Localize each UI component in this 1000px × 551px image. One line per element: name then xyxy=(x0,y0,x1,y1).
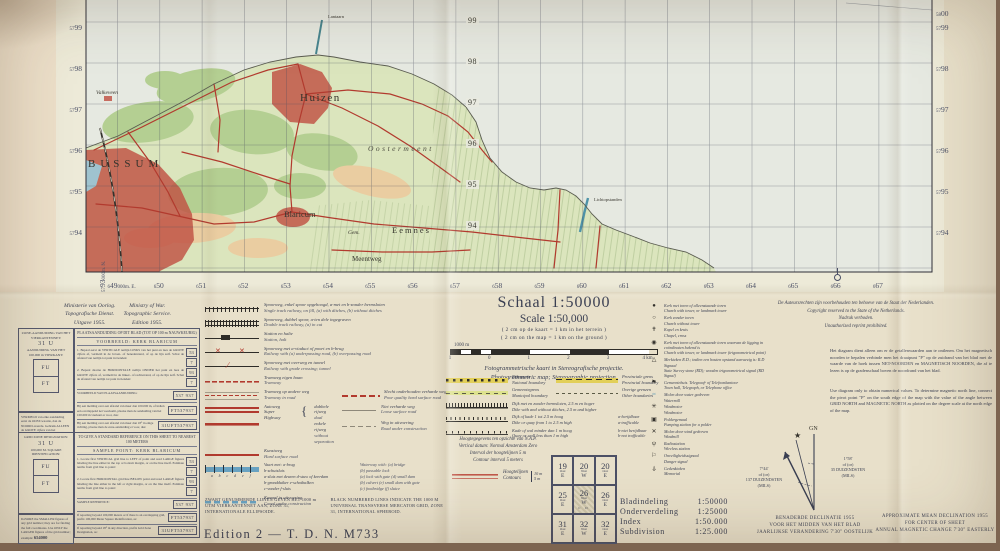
legend-row: KunstwegHard surface road xyxy=(205,448,448,460)
grid-easting-label-digits: 65 xyxy=(791,281,799,290)
symbol-label-en: Church with tower, or landmark tower (tr… xyxy=(664,350,767,355)
publisher-line: Ministerie van Oorlog. xyxy=(64,302,115,310)
sheet-index-cell: 25OostE xyxy=(552,485,573,514)
copyright-line: Unauthorized reprint prohibited. xyxy=(756,323,956,331)
radio-station-icon: ψ xyxy=(649,441,659,448)
grid-easting-label-digits: 60 xyxy=(579,281,587,290)
town-hall-icon: ⚑ xyxy=(649,380,659,387)
grid-northing-label-digits: 99 xyxy=(75,23,83,32)
grid-inner-number: 98 xyxy=(466,57,479,66)
legend-label: Spoorweg, dubbel spoor, a-ten dele ingeg… xyxy=(264,317,448,329)
legend-label-en: Railway with (a) underpassing road, (b) … xyxy=(264,351,448,357)
ref-title: TO GIVE A STANDARD REFERENCE ON THIS SHE… xyxy=(77,435,197,447)
grid-easting-label-digits: 66 xyxy=(833,281,841,290)
tenths-value: 7 xyxy=(186,378,197,387)
symbol-row: ≈Molen door water gedrevenWatermill xyxy=(649,392,767,403)
grid-northing-label-digits: 95 xyxy=(75,187,83,196)
grid-easting-label-digits: 50 xyxy=(156,281,164,290)
square-prefix-row: If reporting beyond 100,000 meters or if… xyxy=(77,511,197,522)
memorial-icon: ⍙ xyxy=(649,466,659,473)
step-text: 2. Bepaal daarna de HORIZONTALE netlijn … xyxy=(77,368,184,387)
publisher-line: Ministry of War. xyxy=(123,302,171,310)
scale-bar-segment xyxy=(609,350,649,354)
sheet-letter: E xyxy=(561,532,564,538)
highway-right-column: Niet verharde wegLoose surface roadWeg i… xyxy=(342,404,448,435)
grid-northing-label: 5795 xyxy=(936,181,949,199)
symbol-label: Kerk zonder torenChurch without tower xyxy=(664,315,767,326)
contour-line-symbol xyxy=(452,472,498,480)
scale-tick: 1 xyxy=(528,356,531,361)
loose-road-symbol xyxy=(342,406,376,416)
grid-inner-number: 95 xyxy=(466,180,479,189)
sample-label: VOORBEELD VAN PLAATSAANDUIDING: xyxy=(77,391,171,400)
grid-easting-label: 652 xyxy=(238,275,248,293)
utm-note-dutch: ZWART GENUMMERDE LIJNEN GEVEN HET 1000 m… xyxy=(205,497,323,515)
grid-easting-label: 655 xyxy=(365,275,375,293)
step-values: 537 xyxy=(186,348,197,367)
grid-easting-label-suffix: 000m. E. xyxy=(118,285,136,290)
symbol-label-en: Church without tower xyxy=(664,321,767,326)
grid-northing-label-digits: 98 xyxy=(941,64,949,73)
symbol-row: ✳WindmotorWindmotor xyxy=(649,404,767,415)
sheet-index-labels: Bladindeling1:50000Onderverdeling1:25000… xyxy=(620,497,728,537)
sheet-index-table: 19OostE20WestW20OostE25OostE26WestWC D26… xyxy=(551,455,617,544)
legend-label-en: Loose surface road xyxy=(381,409,448,415)
topographic-map: HuizenBUSSUMOostermeentBlaricumGem.Eemne… xyxy=(0,0,1000,292)
nap-line: Vertical datum: Normal Amsterdam Zero xyxy=(446,444,550,451)
diagram-note-english: Use diagram only to obtain numerical val… xyxy=(830,388,992,414)
ref-step-1: 1. Locate first VERTICAL grid line to LE… xyxy=(77,457,197,476)
dike-high-symbol xyxy=(446,403,508,411)
church-trig-icon: ◉ xyxy=(649,340,659,347)
highway-legend-row: AutowegSuperHighway{dubbele rijwegdualen… xyxy=(205,404,448,446)
grid-reference-box-en: TO GIVE A STANDARD REFERENCE ON THIS SHE… xyxy=(74,432,200,538)
legend-row: Tramweg eigen baanTramway xyxy=(205,375,448,387)
grid-northing-label-digits: 00 xyxy=(941,9,949,18)
declination-caption-line: FOR CENTER OF SHEET xyxy=(874,521,996,528)
legend-row: Spoorweg met overweg en tunnelRailway wi… xyxy=(205,360,448,372)
true-north-line xyxy=(796,440,814,510)
grid-easting-label-digits: 57 xyxy=(452,281,460,290)
dike-mid-symbol xyxy=(446,416,508,424)
map-sheet: HuizenBUSSUMOostermeentBlaricumGem.Eemne… xyxy=(0,0,996,543)
map-label: Blaricum xyxy=(284,209,316,219)
grid-easting-label: 650 xyxy=(154,275,164,293)
grid-northing-corner-label: 5793000m. N. xyxy=(92,261,110,292)
grid-easting-label: 656 xyxy=(408,275,418,293)
grid-easting-label: 661 xyxy=(619,275,629,293)
grid-northing-label: 5800 xyxy=(936,3,949,21)
grid-easting-label-digits: 64 xyxy=(749,281,757,290)
declination-right-line: (MILS) xyxy=(822,473,874,479)
scale-note-en: ( 2 cm on the map = 1 km on the ground ) xyxy=(446,335,662,341)
index-label-value: 1:50.000 xyxy=(695,517,728,527)
sheet-letter: E xyxy=(561,474,564,480)
symbol-label-en: Watermill xyxy=(664,398,767,403)
rd-stone-icon: △ xyxy=(649,357,659,364)
boundary-row: Dijk met en zonder bermsloten, 2.5 m en … xyxy=(446,401,662,412)
symbol-label: Kapel en kruisChapel, cross xyxy=(664,327,767,338)
symbol-label: Kerk met toren of alleenstaande toren wa… xyxy=(664,340,767,356)
grid-northing-label: 5798 xyxy=(46,58,82,76)
boundary-label: Dijk of kade 1 tot 2.5 m hoogDike or qua… xyxy=(512,414,614,425)
legend-label-en: Station, halt xyxy=(264,337,448,343)
sheet-index-cell: 32WestW xyxy=(573,514,594,543)
legend-label: KunstwegHard surface road xyxy=(264,448,448,460)
grid-northing-label-digits: 95 xyxy=(941,187,949,196)
poor-road-symbol xyxy=(342,391,380,401)
grid-easting-label-digits: 52 xyxy=(241,281,249,290)
sheet-letter: E xyxy=(604,474,607,480)
grid-easting-label-digits: 54 xyxy=(326,281,334,290)
symbol-label: WindmotorWindmotor xyxy=(664,404,767,415)
grid-northing-label: 5797 xyxy=(936,99,949,117)
grid-easting-label: 649000m. E. xyxy=(108,275,136,293)
map-label: Huizen xyxy=(300,92,341,104)
index-label-value: 1:50000 xyxy=(698,497,728,507)
footer-example: 654000 xyxy=(34,535,48,540)
grid-northing-label: 5794 xyxy=(46,222,82,240)
symbol-row: ○Kerk zonder torenChurch without tower xyxy=(649,315,767,326)
sheet-index-cell: 20OostE xyxy=(595,456,616,485)
square-diagram: FU FT xyxy=(33,359,59,393)
square-fu: FU xyxy=(34,360,58,377)
boundary-row: GemeentegrensMunicipal boundaryOverige g… xyxy=(446,387,662,398)
grid-northing-label: 5795 xyxy=(46,181,82,199)
scale-subtitle: Scale 1:50,000 xyxy=(446,313,662,325)
sample-reference-row: SAMPLE REFERENCE: 537 937 xyxy=(77,498,197,509)
sample-value: 537 937 xyxy=(173,500,197,509)
legend-label-en: Tramway in road xyxy=(264,395,337,401)
grid-easting-label-digits: 49 xyxy=(110,281,118,290)
symbol-label-en: Windmotor xyxy=(664,410,767,415)
legend-label: Weg in uitvoeringRoad under construction xyxy=(381,420,448,432)
scale-bar-segment xyxy=(481,350,491,354)
publisher-block: Ministerie van Oorlog. Topografische Die… xyxy=(64,302,171,327)
boundary-label: Dijk met en zonder bermsloten, 2.5 m en … xyxy=(512,401,662,412)
grid-easting-label-digits: 56 xyxy=(410,281,418,290)
example-value: KERK BLARICUM xyxy=(136,448,181,453)
pumping-station-icon: ▣ xyxy=(649,417,659,424)
highway-sub-labels: dubbele rijwegdualenkele rijwegwithout s… xyxy=(314,404,337,446)
waterway-legend-row: a b c d e fVaart met: a-brugWaterway wit… xyxy=(205,462,448,492)
true-north-star-icon: ★ xyxy=(794,431,801,440)
declination-right-value: 1°58'of (or)35 DUIZENDSTEN(MILS) xyxy=(822,456,874,479)
map-label: Lichtopstanden xyxy=(594,197,622,202)
ref-title: PLAATSAANDUIDING OP DIT BLAD (TOT OP 100… xyxy=(77,331,197,338)
sheet-letter: E xyxy=(604,503,607,509)
symbol-label-en: Chapel, cross xyxy=(664,333,767,338)
boundary-label: RijksgrensNational boundary xyxy=(512,374,552,385)
scale-note-nl: ( 2 cm op de kaart = 1 km in het terrein… xyxy=(446,327,662,333)
index-label-key: Bladindeling xyxy=(620,497,669,507)
tram-own-symbol xyxy=(205,377,259,387)
grid-northing-label: 5797 xyxy=(46,99,82,117)
easting-value: 53 xyxy=(186,348,197,357)
copyright-block: De Auteursrechten zijn voorbehouden ten … xyxy=(756,300,956,331)
rail-crossing-symbol xyxy=(205,362,259,372)
windmill-icon: ✕ xyxy=(649,429,659,436)
grid-easting-label-digits: 51 xyxy=(199,281,207,290)
rail-double-symbol xyxy=(205,319,259,329)
ref-example: VOORBEELD: KERK BLARICUM xyxy=(77,339,197,346)
legend-row: Spoorweg, dubbel spoor, a-ten dele ingeg… xyxy=(205,317,448,329)
map-label: BUSSUM xyxy=(88,158,163,170)
scale-bar xyxy=(450,349,658,355)
grid-northing-label: 5798 xyxy=(936,58,949,76)
nap-line: Hoogtegegevens ten opzichte van N.A.P. xyxy=(446,437,550,444)
brace-glyph: { xyxy=(301,404,307,417)
sheet-index-cell: 20WestW xyxy=(573,456,594,485)
index-label-row: Bladindeling1:50000 xyxy=(620,497,728,507)
publisher-dutch: Ministerie van Oorlog. Topografische Die… xyxy=(64,302,115,327)
index-label-row: Subdivision1:25.000 xyxy=(620,527,728,537)
grid-easting-label: 657 xyxy=(450,275,460,293)
sheet-subdivision: C D xyxy=(578,506,589,510)
scale-bar-segment xyxy=(461,350,471,354)
row-text: Bij een melding over een afstand van mee… xyxy=(77,421,156,430)
zone-prefix-row: Bij een melding over een afstand van mee… xyxy=(77,419,197,430)
grid-easting-label: 653 xyxy=(281,275,291,293)
rail-viaduct-symbol xyxy=(205,348,259,358)
pivot-point-marker xyxy=(834,274,841,281)
grid-easting-label-digits: 58 xyxy=(495,281,503,290)
sheet-index-cell: 19OostE xyxy=(552,456,573,485)
waterway-letters: a b c d e f xyxy=(205,474,259,478)
declination-caption-line: APPROXIMATE MEAN DECLINATION 1955 xyxy=(874,514,996,521)
symbol-row: ✝Kapel en kruisChapel, cross xyxy=(649,327,767,338)
symbol-label: Kerk met toren of alleenstaande torenChu… xyxy=(664,303,767,314)
grid-easting-label: 664 xyxy=(746,275,756,293)
sheet-index-cell: 26OostE xyxy=(595,485,616,514)
legend-label-en: Single track railway, on fill, (a) with … xyxy=(264,308,448,314)
map-label: Gem. xyxy=(348,230,360,236)
legend-label: Niet verharde wegLoose surface road xyxy=(381,404,448,416)
grid-northing-label-digits: 94 xyxy=(941,228,949,237)
grid-northing-label-digits: 97 xyxy=(75,105,83,114)
symbol-label-en: Church with tower, or landmark tower xyxy=(664,308,767,313)
boundary-pair: Provinciale grensProvincial boundary xyxy=(556,374,662,385)
legend-label-en: Double track railway, (a) in cut xyxy=(264,322,448,328)
sheet-letter: E xyxy=(604,532,607,538)
station-symbol xyxy=(205,333,259,343)
grid-easting-label: 658 xyxy=(492,275,502,293)
legend-label: Tramweg eigen baanTramway xyxy=(264,375,448,387)
grid-northing-label: 5794 xyxy=(936,222,949,240)
example-label: SAMPLE POINT: xyxy=(93,448,134,453)
copyright-line: Copyright reserved to the State of the N… xyxy=(756,308,956,316)
map-label: Lantaarn xyxy=(328,14,345,19)
boundary-label-en: National boundary xyxy=(512,380,552,386)
scale-tick: 0 xyxy=(488,356,491,361)
sub-label: enkele rijweg xyxy=(314,421,337,433)
tenths-value: 7 xyxy=(186,467,197,476)
nap-line: Interval der hoogtelijnen 5 m xyxy=(446,451,550,458)
projection-note-nl: Fotogrammetrische kaart in Stereografisc… xyxy=(446,365,662,372)
grid-northing-label-digits: 96 xyxy=(75,146,83,155)
scale-tick: 1 xyxy=(449,356,452,361)
ref-example: SAMPLE POINT: KERK BLARICUM xyxy=(77,448,197,455)
declination-caption-english: APPROXIMATE MEAN DECLINATION 1955FOR CEN… xyxy=(874,514,996,535)
zone-prefix-row: If reporting beyond 18° in any direction… xyxy=(77,524,197,535)
grid-zone-box-nl: ZONE-AANDUIDING VAN HET VIERKANTENNET: 3… xyxy=(18,328,74,412)
index-label-row: Index1:50.000 xyxy=(620,517,728,527)
symbol-row: ⚑Gemeentehuis. Telegraaf- of Telefoonkan… xyxy=(649,380,767,391)
highway-dual-symbol xyxy=(205,406,259,416)
grid-northing-label-digits: 96 xyxy=(941,146,949,155)
utm-grid-note: ZWART GENUMMERDE LIJNEN GEVEN HET 1000 m… xyxy=(205,497,448,515)
watermill-icon: ≈ xyxy=(649,392,659,399)
sheet-letter: W xyxy=(581,532,586,538)
legend-row: Spoorweg, enkel spoor opgehoogd, a-met e… xyxy=(205,302,448,314)
waterway-label-nl: c-vonder f-sluis xyxy=(264,486,360,492)
boundary-row: RijksgrensNational boundaryProvinciale g… xyxy=(446,374,662,385)
boundary-pair: Overige grenzenOther boundaries xyxy=(556,387,662,398)
scale-title: Schaal 1:50000 xyxy=(446,294,662,312)
sub-label: dubbele rijweg xyxy=(314,404,337,416)
declination-caption-line: ANNUAL MAGNETIC CHANGE 7'30" EASTERLY xyxy=(874,528,996,535)
highway-symbols xyxy=(205,406,259,432)
square-ft: FT xyxy=(34,377,58,393)
scale-bar-segment xyxy=(451,350,461,354)
scale-bar-label: 1000 m xyxy=(454,343,662,348)
symbol-label-nl: Kerk met toren of alleenstaande toren wa… xyxy=(664,340,767,351)
rail-single-symbol xyxy=(205,304,259,314)
square-title: AANDUIDING VAN HET 100.000 m VIERKANT: xyxy=(21,348,71,357)
waterway-label-en: (c) footbridge (f) sluice xyxy=(360,486,400,492)
ref-step-1: 1. Bepaal eerst de VERTICALE netlijn LIN… xyxy=(77,348,197,367)
boundary-pair: RijksgrensNational boundary xyxy=(446,374,552,385)
other-symbol xyxy=(556,389,618,397)
grid-easting-label: 654 xyxy=(323,275,333,293)
publisher-line: Uitgave 1955. xyxy=(64,319,115,327)
grid-northing-label: 5796 xyxy=(936,140,949,158)
tenths-value: 7 xyxy=(186,487,197,496)
map-label: Valkeveen xyxy=(96,90,118,96)
scale-bar-segment xyxy=(570,350,610,354)
church-no-tower-icon: ○ xyxy=(649,315,659,322)
grid-northing-corner-label-digits: 93 xyxy=(98,280,107,288)
contour-interval-5: 5 m xyxy=(534,476,542,481)
symbol-label: Merkteken R.D.; indien een houten opstan… xyxy=(664,357,767,378)
publisher-english: Ministry of War. Topographic Service. Ed… xyxy=(123,302,171,327)
legend-label: Spoorweg met overweg en tunnelRailway wi… xyxy=(264,360,448,372)
square-diagram: FU FT xyxy=(33,459,59,493)
sheet-index-cell: 32OostE xyxy=(595,514,616,543)
nap-line: Contour interval 5 meters xyxy=(446,458,550,465)
legend-label-en: Road under construction xyxy=(381,426,448,432)
hard-road-symbol xyxy=(205,450,259,460)
transport-legend: Spoorweg, enkel spoor opgehoogd, a-met e… xyxy=(205,302,448,509)
grid-inner-number: 94 xyxy=(466,221,479,230)
publisher-line: Topographic Service. xyxy=(123,310,171,318)
vertical-datum-note: Hoogtegegevens ten opzichte van N.A.P. V… xyxy=(446,437,550,465)
publisher-line: Topografische Dienst. xyxy=(64,310,115,318)
symbol-label-en: State Survey stone (RD); wooden trigonom… xyxy=(664,368,767,379)
grid-easting-label-digits: 67 xyxy=(875,281,883,290)
step-text: 1. Locate first VERTICAL grid line to LE… xyxy=(77,457,184,476)
grid-zone-box-en: GRID ZONE DESIGNATION: 31 U 100,000 M. S… xyxy=(18,432,74,514)
scale-bar-segment xyxy=(530,350,570,354)
scale-tick: 3 xyxy=(607,356,610,361)
legend-row: Spoorweg met a-viaduct of poort en b-bru… xyxy=(205,346,448,358)
index-label-value: 1:25000 xyxy=(698,507,728,517)
grid-easting-label-digits: 55 xyxy=(368,281,376,290)
legend-label-en: Tramway xyxy=(264,380,448,386)
northing-value: 93 xyxy=(186,368,197,377)
tenths-value: 7 xyxy=(186,358,197,367)
legend-row: Tramweg op andere wegTramway in roadSlec… xyxy=(205,389,448,401)
loose-road-row: Niet verharde wegLoose surface road xyxy=(342,404,448,416)
sheet-index-cell: 26WestWC D xyxy=(573,485,594,514)
grid-northing-corner-label-prefix: 57 xyxy=(102,287,107,292)
grid-easting-label: 659 xyxy=(535,275,545,293)
waterway-label-line: c-vonder f-sluis(c) footbridge (f) sluic… xyxy=(264,486,448,492)
grid-northing-corner-label-suffix: 000m. N. xyxy=(102,261,107,280)
grid-inner-number: 96 xyxy=(466,139,479,148)
grid-northing-label-digits: 97 xyxy=(941,105,949,114)
index-label-value: 1:25.000 xyxy=(695,527,728,537)
zone-title: ZONE-AANDUIDING VAN HET VIERKANTENNET: xyxy=(21,331,71,340)
square-ft: FT xyxy=(34,476,58,492)
contour-legend: HoogtelijnenContours 10 m5 m xyxy=(452,470,542,482)
legend-row-right: Slecht onderhouden verharde wegPoor qual… xyxy=(342,389,448,401)
grid-inner-number: 97 xyxy=(466,98,479,107)
grid-easting-label: 662 xyxy=(661,275,671,293)
boundary-label: GemeentegrensMunicipal boundary xyxy=(512,387,552,398)
grid-easting-label-digits: 53 xyxy=(283,281,291,290)
church-tower-icon: ● xyxy=(649,303,659,310)
step-values: 937 xyxy=(186,477,197,496)
sample-label: SAMPLE REFERENCE: xyxy=(77,500,171,509)
row-text: If reporting beyond 100,000 meters or if… xyxy=(77,513,166,522)
grid-easting-label: 663 xyxy=(704,275,714,293)
highway-label-en: Highway xyxy=(264,415,294,421)
edition-line: Edition 2 — T. D. N. M733 xyxy=(204,527,380,542)
grid-northing-label: 5799 xyxy=(46,17,82,35)
diagram-note-dutch: Het diagram dient alleen om er de getall… xyxy=(830,348,992,374)
provincial-symbol xyxy=(556,376,618,384)
legend-label: Tramweg op andere wegTramway in road xyxy=(264,389,337,401)
symbol-row: △Merkteken R.D.; indien een houten opsta… xyxy=(649,357,767,378)
index-label-row: Onderverdeling1:25000 xyxy=(620,507,728,517)
windmotor-icon: ✳ xyxy=(649,404,659,411)
utm-note-english: BLACK NUMBERED LINES INDICATE THE 1000 M… xyxy=(331,497,449,515)
symbol-label: Gemeentehuis. Telegraaf- of Telefoonkant… xyxy=(664,380,767,391)
row-value: FT537937 xyxy=(168,513,197,522)
legend-label-en: Hard surface road xyxy=(264,454,448,460)
symbol-label-nl: Merkteken R.D.; indien een houten opstan… xyxy=(664,357,767,368)
symbol-label-en: Town hall, Telegraph, or Telephone offic… xyxy=(664,385,767,390)
danger-signal-icon: ⚐ xyxy=(649,453,659,460)
legend-label-en: Poor quality hard surface road xyxy=(384,395,448,401)
zone-value: 31 U xyxy=(21,341,71,347)
declination-caption-line: VOOR HET MIDDEN VAN HET BLAD xyxy=(742,523,888,530)
square-prefix-row: Bij een melding over een afstand van mee… xyxy=(77,402,197,416)
grid-easting-label-digits: 61 xyxy=(622,281,630,290)
contour-label-en: Contours xyxy=(503,476,528,482)
declination-left-line: (MILS) xyxy=(736,483,792,489)
publisher-line: Edition 1955. xyxy=(123,319,171,327)
municipal-symbol xyxy=(446,389,508,397)
map-content xyxy=(86,0,932,272)
legend-label-en: Railway with grade crossing; tunnel xyxy=(264,366,448,372)
grid-footer-box-en: IGNORE the SMALLER figures of any grid n… xyxy=(18,514,74,544)
legend-label: Station en halteStation, halt xyxy=(264,331,448,343)
boundary-legend: RijksgrensNational boundaryProvinciale g… xyxy=(446,374,662,441)
chapel-cross-icon: ✝ xyxy=(649,327,659,334)
boundary-label-en: Dike or quay from 1 to 2.5 m high xyxy=(512,420,614,426)
